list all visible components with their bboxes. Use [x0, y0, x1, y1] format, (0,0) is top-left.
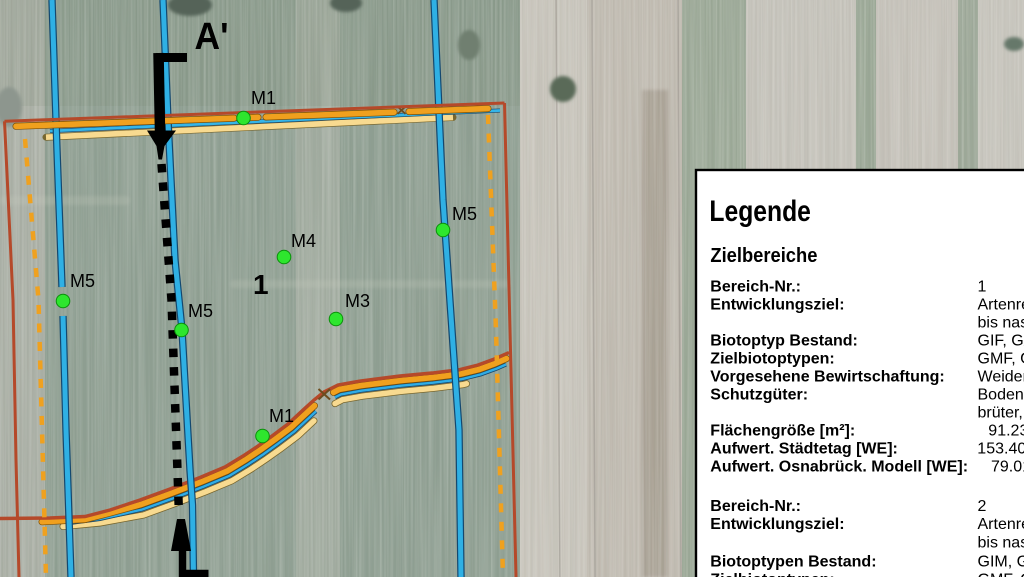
svg-text:Schutzgüter:: Schutzgüter: — [710, 386, 808, 403]
svg-text:GIM, GN: GIM, GN — [978, 553, 1024, 570]
svg-text:2: 2 — [978, 498, 987, 515]
svg-text:GMF, GN: GMF, GN — [978, 572, 1024, 577]
svg-text:bis nasses Grünland: bis nasses Grünland — [978, 314, 1024, 331]
svg-text:Zielbiotoptypen:: Zielbiotoptypen: — [710, 572, 834, 577]
svg-text:Zielbiotoptypen:: Zielbiotoptypen: — [710, 350, 834, 367]
svg-text:91.236,00: 91.236,00 — [988, 422, 1024, 439]
svg-text:Artenreiches Grünland: Artenreiches Grünland — [978, 296, 1024, 313]
svg-text:Aufwert. Städtetag [WE]:: Aufwert. Städtetag [WE]: — [710, 440, 898, 457]
svg-text:Artenreiches Grünland: Artenreiches Grünland — [978, 516, 1024, 533]
svg-text:GIF, GA, GMF: GIF, GA, GMF — [978, 332, 1024, 349]
svg-text:M5: M5 — [188, 301, 213, 321]
svg-text:GMF, GFF: GMF, GFF — [978, 350, 1024, 367]
svg-text:Biotoptyp Bestand:: Biotoptyp Bestand: — [710, 332, 858, 349]
svg-text:Entwicklungsziel:: Entwicklungsziel: — [710, 516, 844, 533]
svg-text:1: 1 — [253, 269, 269, 300]
svg-text:Zielbereiche: Zielbereiche — [710, 245, 817, 267]
svg-text:M4: M4 — [291, 231, 316, 251]
svg-text:M5: M5 — [452, 204, 477, 224]
svg-text:Weidenutzung: Weidenutzung — [978, 368, 1024, 385]
svg-text:153.407,00: 153.407,00 — [977, 440, 1024, 457]
svg-text:Flächengröße [m²]:: Flächengröße [m²]: — [710, 422, 855, 439]
svg-text:M1: M1 — [251, 88, 276, 108]
svg-text:1: 1 — [978, 278, 987, 295]
svg-text:Legende: Legende — [709, 195, 811, 228]
svg-text:brüter, Amphibien: brüter, Amphibien — [978, 404, 1024, 421]
svg-text:Biotoptypen Bestand:: Biotoptypen Bestand: — [710, 553, 876, 570]
svg-text:Entwicklungsziel:: Entwicklungsziel: — [710, 296, 844, 313]
svg-text:M5: M5 — [70, 271, 95, 291]
svg-text:Bereich-Nr.:: Bereich-Nr.: — [710, 498, 801, 515]
svg-text:M1: M1 — [269, 406, 294, 426]
svg-text:Bodenbrüter, Wiesen: Bodenbrüter, Wiesen — [978, 386, 1024, 403]
svg-text:M3: M3 — [345, 291, 370, 311]
svg-text:Aufwert. Osnabrück. Modell [WE: Aufwert. Osnabrück. Modell [WE]: — [710, 458, 968, 475]
svg-text:A': A' — [195, 16, 229, 58]
svg-text:bis nasses Grünland: bis nasses Grünland — [978, 535, 1024, 552]
svg-text:79.012,00: 79.012,00 — [991, 458, 1024, 475]
svg-text:Bereich-Nr.:: Bereich-Nr.: — [710, 278, 801, 295]
svg-text:Vorgesehene Bewirtschaftung:: Vorgesehene Bewirtschaftung: — [710, 368, 944, 385]
